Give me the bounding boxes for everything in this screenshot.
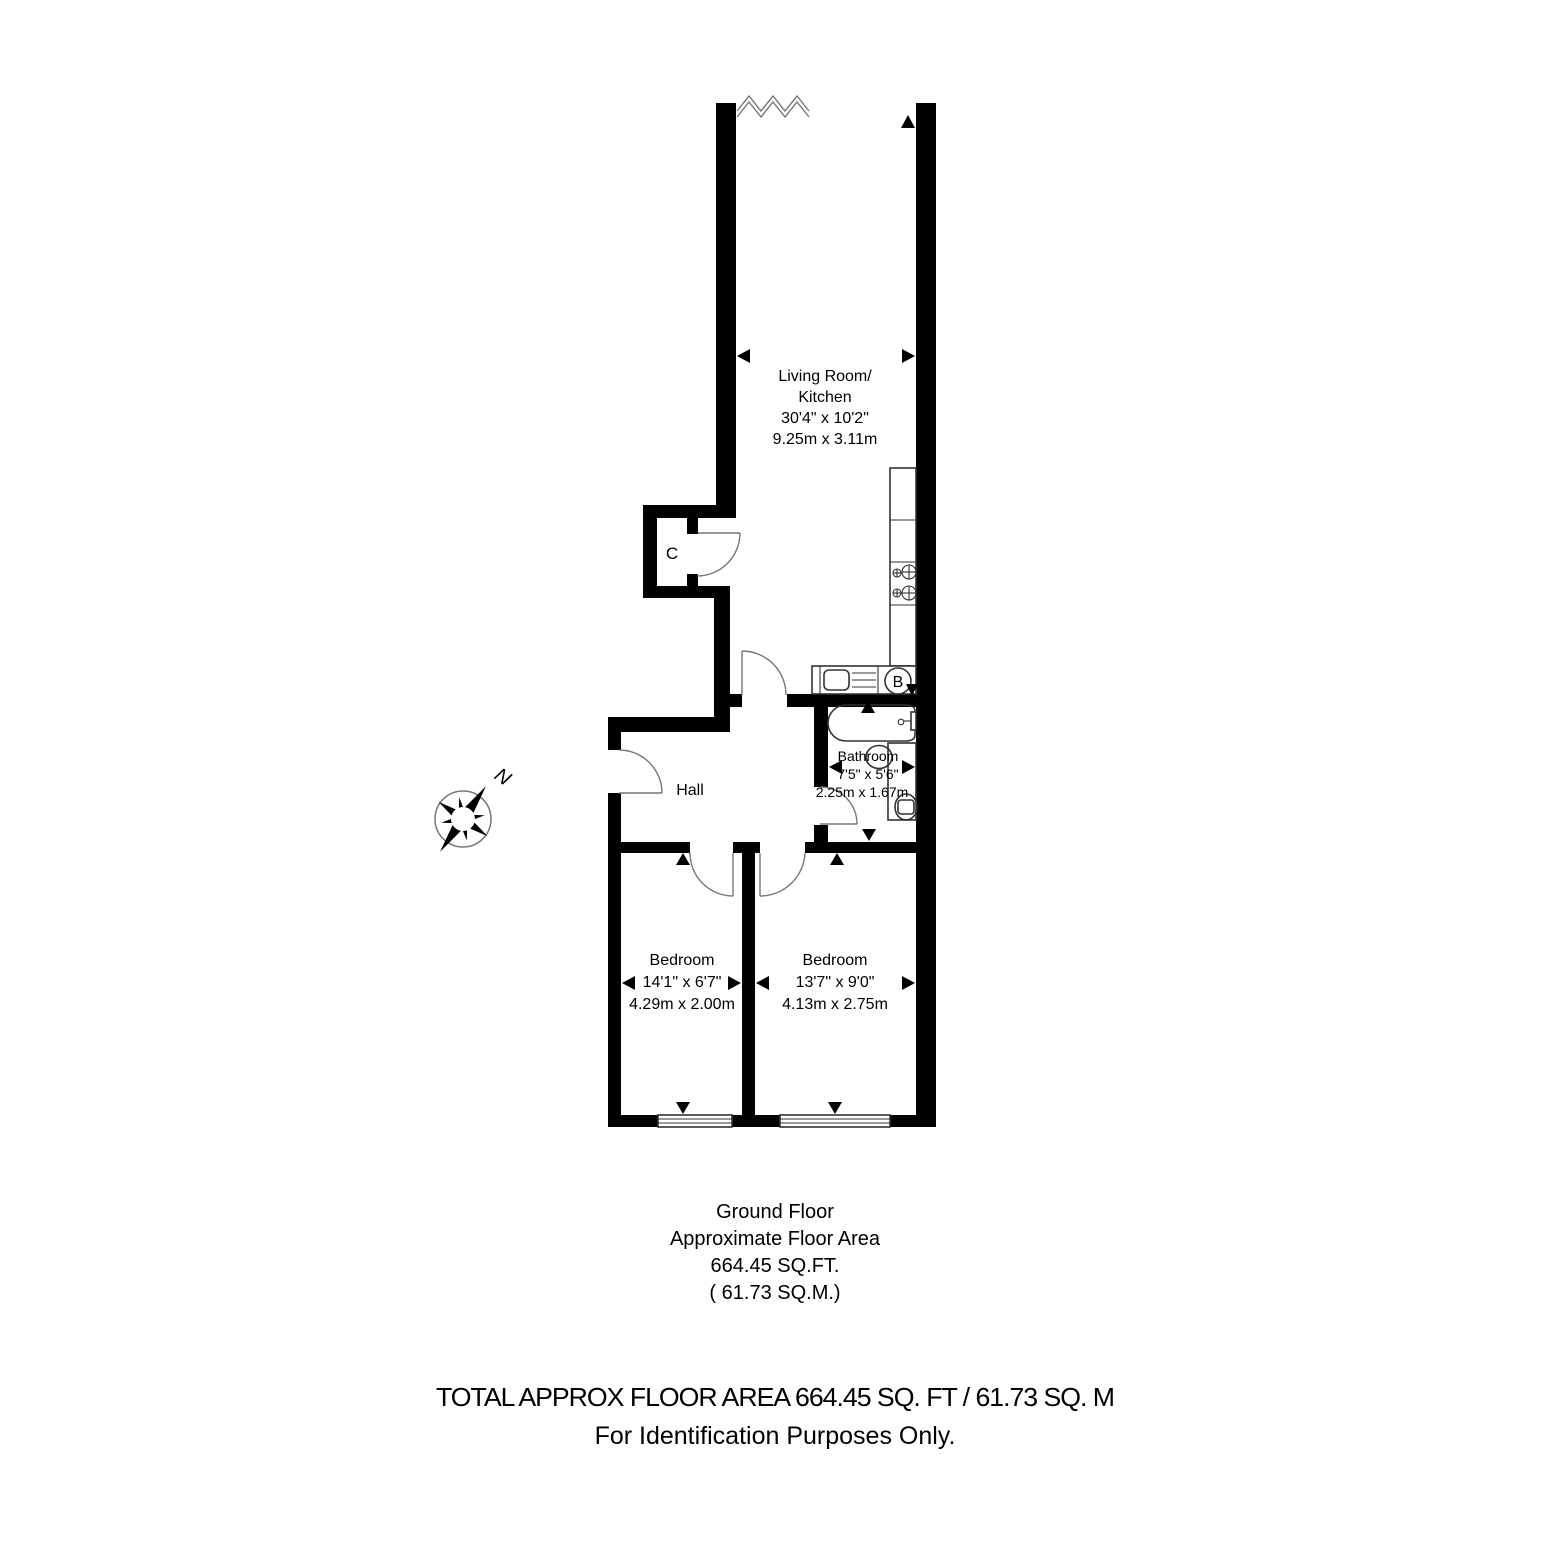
room-name: Living Room/ bbox=[778, 368, 872, 385]
boiler-badge: B bbox=[885, 668, 911, 694]
wall-segment bbox=[687, 574, 698, 587]
wall-segment bbox=[608, 1115, 658, 1127]
wall-segment bbox=[687, 518, 698, 534]
boiler-label: B bbox=[893, 674, 904, 691]
wall-segment bbox=[608, 717, 730, 732]
wall-segment bbox=[608, 732, 621, 750]
identification-line: For Identification Purposes Only. bbox=[595, 1422, 956, 1450]
front-door-icon bbox=[619, 750, 662, 793]
room-dims-metric: 9.25m x 3.11m bbox=[773, 431, 878, 448]
arrow-right-icon bbox=[902, 976, 915, 990]
wall-segment bbox=[621, 842, 690, 853]
compass-north-label: N bbox=[490, 764, 515, 791]
kitchen-counter-icon bbox=[890, 468, 916, 666]
room-name: Kitchen bbox=[798, 389, 851, 406]
hall-label: Hall bbox=[676, 782, 704, 799]
arrow-up-icon bbox=[830, 853, 844, 865]
wall-segment bbox=[890, 1115, 936, 1127]
arrow-up-icon bbox=[676, 853, 690, 865]
wall-break-zigzag-icon bbox=[737, 96, 809, 117]
floor-area-sqft: 664.45 SQ.FT. bbox=[711, 1255, 840, 1277]
kitchen-fixtures: B bbox=[812, 468, 916, 694]
wall-segment bbox=[714, 586, 730, 732]
wall-segment bbox=[916, 103, 936, 1127]
room-dims-imperial: 13'7" x 9'0" bbox=[796, 974, 875, 991]
total-area-line: TOTAL APPROX FLOOR AREA 664.45 SQ. FT / … bbox=[436, 1382, 1114, 1412]
room-name: Bedroom bbox=[650, 952, 715, 969]
arrow-down-icon bbox=[862, 829, 876, 841]
bedroom1-label: Bedroom 14'1" x 6'7" 4.29m x 2.00m bbox=[629, 952, 735, 1013]
bedroom1-door-icon bbox=[690, 853, 733, 896]
wall-segment bbox=[730, 694, 742, 707]
room-dims-imperial: 7'5" x 5'6" bbox=[837, 766, 898, 782]
arrow-down-icon bbox=[676, 1102, 690, 1114]
arrow-right-icon bbox=[728, 976, 741, 990]
wall-segment bbox=[716, 103, 736, 518]
arrow-right-icon bbox=[902, 349, 915, 363]
floor-area-sqm: ( 61.73 SQ.M.) bbox=[709, 1282, 840, 1304]
window-icon bbox=[780, 1115, 890, 1127]
living-room-label: Living Room/ Kitchen 30'4" x 10'2" 9.25m… bbox=[773, 368, 878, 448]
wall-segment bbox=[733, 842, 760, 853]
closet-label: C bbox=[666, 544, 678, 563]
arrow-left-icon bbox=[756, 976, 769, 990]
bathroom-label: Bathroom 7'5" x 5'6" 2.25m x 1.67m bbox=[816, 748, 909, 800]
wall-segment bbox=[732, 1115, 780, 1127]
window-icon bbox=[658, 1115, 732, 1127]
arrow-right-icon bbox=[902, 760, 915, 774]
floor-area-caption: Approximate Floor Area bbox=[670, 1228, 881, 1250]
wall-segment bbox=[608, 793, 621, 1127]
room-dims-imperial: 30'4" x 10'2" bbox=[781, 410, 869, 427]
closet-door-icon bbox=[697, 533, 740, 576]
wall-segment bbox=[814, 707, 828, 787]
floor-name: Ground Floor bbox=[716, 1201, 834, 1223]
living-room-door-icon bbox=[742, 651, 786, 695]
compass-icon: N bbox=[435, 764, 515, 852]
bedroom2-label: Bedroom 13'7" x 9'0" 4.13m x 2.75m bbox=[782, 952, 888, 1013]
floorplan-drawing: B bbox=[0, 0, 1550, 1550]
wall-segment bbox=[643, 505, 657, 598]
wall-segment bbox=[742, 853, 755, 1115]
room-dims-metric: 4.29m x 2.00m bbox=[629, 996, 735, 1013]
wall-segment bbox=[805, 842, 916, 853]
room-dims-metric: 2.25m x 1.67m bbox=[816, 784, 909, 800]
room-name: Bathroom bbox=[838, 748, 899, 764]
arrow-left-icon bbox=[622, 976, 635, 990]
bedroom2-door-icon bbox=[760, 853, 805, 896]
arrow-up-icon bbox=[901, 115, 915, 128]
footer-text: Ground Floor Approximate Floor Area 664.… bbox=[436, 1201, 1114, 1450]
wall-segment bbox=[814, 825, 828, 842]
arrow-left-icon bbox=[737, 349, 750, 363]
floorplan-page: B bbox=[0, 0, 1550, 1550]
arrow-down-icon bbox=[828, 1102, 842, 1114]
room-dims-imperial: 14'1" x 6'7" bbox=[643, 974, 722, 991]
room-dims-metric: 4.13m x 2.75m bbox=[782, 996, 888, 1013]
room-name: Bedroom bbox=[803, 952, 868, 969]
